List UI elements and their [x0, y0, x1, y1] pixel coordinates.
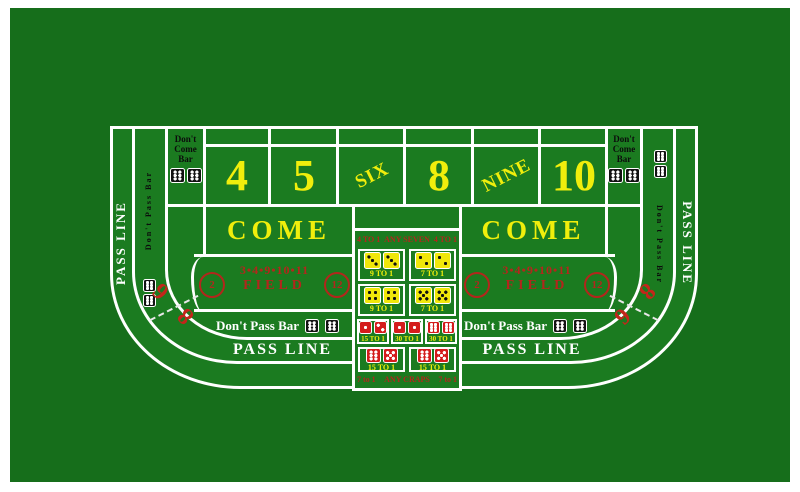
dont-come-label: Bar [617, 154, 632, 164]
pass-line-label: PASS LINE [233, 341, 332, 358]
dont-come-box-right[interactable]: Don't Come Bar [605, 126, 643, 207]
dont-pass-bar-label: Don't Pass Bar [144, 171, 153, 250]
come-label: COME [482, 215, 586, 246]
odds-label: 15 TO 1 [368, 364, 395, 372]
die-icon [325, 319, 339, 333]
die-icon [625, 168, 640, 183]
pass-line-left-rail[interactable]: PASS LINE [110, 145, 132, 340]
dont-pass-bar-bottom-right[interactable]: Don't Pass Bar [464, 313, 605, 339]
die-icon [170, 168, 185, 183]
die-icon [374, 321, 387, 334]
die-icon [415, 287, 432, 304]
hardway-six-bet[interactable]: 9 TO 1 [358, 249, 405, 281]
die-icon [654, 150, 667, 163]
odds-label: 7 TO 1 [421, 305, 444, 313]
hardway-ten-bet[interactable]: 7 TO 1 [409, 284, 456, 316]
point-box-nine[interactable]: NINE [473, 147, 541, 204]
dont-come-label: Come [174, 144, 197, 154]
dont-pass-bar-left-rail[interactable]: Don't Pass Bar [132, 148, 165, 273]
any-seven-odds: 4 TO 1 [434, 235, 457, 244]
die-icon [364, 287, 381, 304]
die-icon [427, 321, 440, 334]
point-label: SIX [352, 158, 393, 193]
odds-label: 15 TO 1 [361, 335, 385, 343]
pass-line-label: PASS LINE [679, 201, 695, 285]
eleven-bet-left[interactable]: 15 TO 1 [358, 347, 405, 372]
point-box-4[interactable]: 4 [203, 147, 271, 204]
hardway-eight-bet[interactable]: 9 TO 1 [358, 284, 405, 316]
die-icon [383, 348, 398, 363]
eleven-bet-right[interactable]: 15 TO 1 [409, 347, 456, 372]
die-icon [359, 321, 372, 334]
dont-come-box-left[interactable]: Don't Come Bar [165, 126, 206, 207]
odds-label: 15 TO 1 [419, 364, 446, 372]
dont-come-label: Bar [178, 154, 193, 164]
pass-line-label: PASS LINE [113, 201, 129, 285]
any-craps-label: ANY CRAPS [384, 375, 430, 384]
three-craps-bet[interactable]: 15 TO 1 [357, 319, 389, 344]
die-icon [408, 321, 421, 334]
point-box-six[interactable]: SIX [338, 147, 406, 204]
odds-label: 30 TO 1 [395, 335, 419, 343]
big-six-label: 6 [147, 277, 175, 305]
pass-line-label: PASS LINE [482, 341, 581, 358]
die-icon [366, 348, 381, 363]
pass-line-bottom-right[interactable]: PASS LINE [459, 341, 605, 359]
die-icon [553, 319, 567, 333]
come-label: COME [227, 215, 331, 246]
pass-line-bottom-left[interactable]: PASS LINE [210, 341, 355, 359]
die-icon [654, 165, 667, 178]
point-box-10[interactable]: 10 [540, 147, 608, 204]
dont-come-label: Don't [613, 134, 635, 144]
die-icon [434, 252, 451, 269]
die-icon [434, 287, 451, 304]
any-craps-odds: 7 to 1 [357, 375, 376, 384]
odds-label: 30 TO 1 [429, 335, 453, 343]
any-seven-label: ANY SEVEN [384, 235, 430, 244]
point-label: 4 [226, 150, 248, 201]
twelve-bet[interactable]: 30 TO 1 [425, 319, 457, 344]
point-label: 5 [293, 150, 315, 201]
dont-pass-bar-label: Don't Pass Bar [216, 318, 299, 334]
point-box-5[interactable]: 5 [270, 147, 338, 204]
die-icon [393, 321, 406, 334]
dont-come-label: Come [613, 144, 636, 154]
craps-table-screenshot: 4 5 SIX 8 NINE 10 Don't Come Bar Don't C… [0, 0, 800, 492]
pass-line-right-rail[interactable]: PASS LINE [676, 145, 698, 340]
come-box-right[interactable]: COME [459, 204, 608, 257]
die-icon [187, 168, 202, 183]
die-icon [608, 168, 623, 183]
die-icon [434, 348, 449, 363]
big-eight-label: 8 [633, 277, 661, 305]
any-craps-odds: 7 to 1 [438, 375, 457, 384]
odds-label: 9 TO 1 [370, 305, 393, 313]
die-icon [442, 321, 455, 334]
hardway-four-bet[interactable]: 7 TO 1 [409, 249, 456, 281]
proposition-box: 4 TO 1 ANY SEVEN 4 TO 1 9 TO 1 7 TO 1 9 … [352, 228, 462, 391]
die-icon [573, 319, 587, 333]
odds-label: 9 TO 1 [370, 270, 393, 278]
die-icon [364, 252, 381, 269]
any-seven-bet[interactable]: 4 TO 1 ANY SEVEN 4 TO 1 [357, 232, 457, 246]
any-craps-bet[interactable]: 7 to 1 ANY CRAPS 7 to 1 [357, 372, 457, 386]
point-label: 8 [428, 150, 450, 201]
field-box-right[interactable]: 3•4•9•10•11 FIELD 2 12 [459, 254, 615, 312]
field-circle-2[interactable]: 2 [464, 272, 490, 298]
odds-label: 7 TO 1 [421, 270, 444, 278]
point-box-8[interactable]: 8 [405, 147, 473, 204]
dont-pass-dice-right [654, 150, 667, 178]
come-box-left[interactable]: COME [203, 204, 355, 257]
field-circle-12[interactable]: 12 [324, 272, 350, 298]
dont-pass-bar-bottom-left[interactable]: Don't Pass Bar [216, 313, 355, 339]
point-label: NINE [479, 154, 535, 197]
any-seven-odds: 4 TO 1 [357, 235, 380, 244]
die-icon [417, 348, 432, 363]
point-label: 10 [552, 150, 596, 201]
dont-come-label: Don't [175, 134, 197, 144]
die-icon [305, 319, 319, 333]
die-icon [383, 252, 400, 269]
die-icon [383, 287, 400, 304]
field-box-left[interactable]: 3•4•9•10•11 FIELD 2 12 [194, 254, 355, 312]
dont-pass-bar-label: Don't Pass Bar [464, 318, 547, 334]
die-icon [415, 252, 432, 269]
dont-pass-bar-label: Don't Pass Bar [655, 205, 664, 284]
two-aces-bet[interactable]: 30 TO 1 [391, 319, 423, 344]
